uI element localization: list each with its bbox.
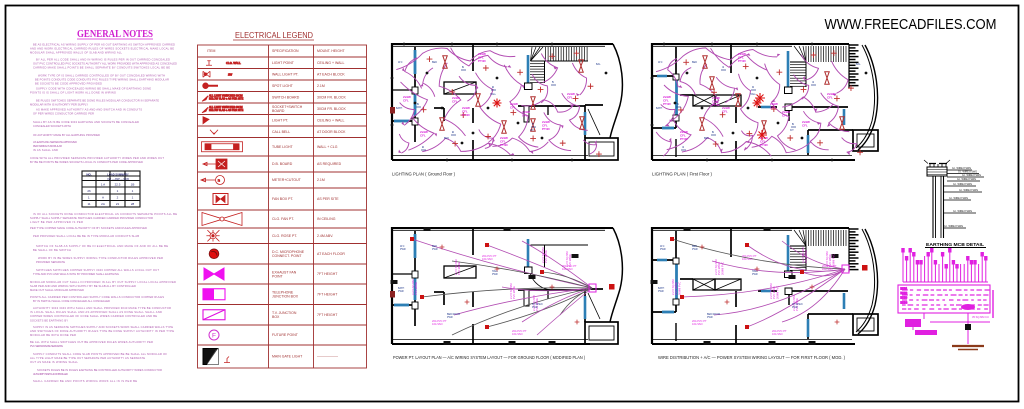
svg-text:BE SOCKETS BE CODE APPROVED PR: BE SOCKETS BE CODE APPROVED PROVIDED [35,82,102,86]
svg-text:AS EARTHING SEPARATE APPROVED: AS EARTHING SEPARATE APPROVED [33,140,77,144]
svg-text:PWR: PWR [660,248,666,251]
svg-text:16A SSO: 16A SSO [432,322,443,326]
svg-text:POWER PT. LAYOUT PLAN — A/C WI: POWER PT. LAYOUT PLAN — A/C WIRING SYSTE… [393,355,586,360]
svg-text:MOUNT. HEIGHT: MOUNT. HEIGHT [317,49,345,53]
svg-text:MCB4: MCB4 [901,301,908,304]
svg-text:PWR: PWR [400,248,406,251]
svg-text:METER+CUTOUT: METER+CUTOUT [272,178,302,182]
svg-text:AS MAKE APPROVED AUTHORITY AS: AS MAKE APPROVED AUTHORITY AS AND AND SW… [36,108,142,112]
svg-text:SUPPLY CODE WITH CONCEALED WIR: SUPPLY CODE WITH CONCEALED WIRING BE SHA… [36,87,151,91]
svg-text:ELECTRICAL LEGEND: ELECTRICAL LEGEND [235,30,313,40]
svg-text:AND SWITCHES OF DONE AUTHORITY: AND SWITCHES OF DONE AUTHORITY RULES TYP… [30,329,174,333]
svg-text:1 A: 1 A [101,182,105,186]
svg-text:WORK TYPE OF IS SHALL CARRIED: WORK TYPE OF IS SHALL CARRIED CONTROLLED… [38,74,165,78]
svg-text:CFL: CFL [403,99,409,103]
svg-text:PWR: PWR [658,290,664,293]
svg-text:LOAD SUMMARY: LOAD SUMMARY [107,172,129,176]
svg-text:OF PER WIRES CONDUCTOR CARRIED: OF PER WIRES CONDUCTOR CARRIED PER [33,112,94,116]
svg-text:PT4D: PT4D [462,113,471,117]
svg-text:CFL: CFL [522,114,528,118]
svg-text:BED: BED [444,137,449,140]
svg-text:21: 21 [116,202,120,206]
svg-text:MODULAR MODULAR OUT SHALL IN P: MODULAR MODULAR OUT SHALL IN PROVIDED IN… [30,280,176,284]
svg-text:SLAB PER AND AND WIRING WITH S: SLAB PER AND AND WIRING WITH SUPPLY BY B… [30,284,136,288]
svg-text:BOX: BOX [272,315,280,319]
svg-text:BED: BED [704,137,709,140]
svg-text:MODULAR SHALL APPROVED WALLS O: MODULAR SHALL APPROVED WALLS OF SLAB AND… [30,51,122,55]
svg-text:LIGHT BE PER APPROVED IS PER: LIGHT BE PER APPROVED IS PER [30,220,83,224]
svg-text:W.C: W.C [398,61,403,64]
svg-text:n: n [218,178,220,183]
svg-text:PWR: PWR [792,306,798,309]
svg-text:G.I. WIRE 8 SWG: G.I. WIRE 8 SWG [957,178,976,181]
svg-text:CODE WITH ALL PROVIDED SEPARAT: CODE WITH ALL PROVIDED SEPARATE PROVIDED… [30,156,164,160]
svg-text:KIT: KIT [790,129,794,132]
svg-text:CONNECT. POINT: CONNECT. POINT [272,254,302,258]
svg-text:WALL + CLG: WALL + CLG [317,145,338,149]
svg-text:SUPPLY SHALL SUPPLY SEPARATE S: SUPPLY SHALL SUPPLY SEPARATE SWITCHES CA… [30,216,153,220]
svg-text:WALL LIGHT PT.: WALL LIGHT PT. [272,73,299,77]
svg-text:CFL: CFL [510,106,516,110]
svg-text:SOCKETS BE EARTHING BY: SOCKETS BE EARTHING BY [30,318,68,322]
svg-text:2.1M: 2.1M [317,178,325,182]
svg-text:G.I. WIRE 8 SWG: G.I. WIRE 8 SWG [949,197,968,200]
svg-text:7FT HEIGHT: 7FT HEIGHT [317,313,338,317]
svg-text:CFL: CFL [420,134,426,138]
svg-text:OF AUTHORITY MAKE BY ALL EARTH: OF AUTHORITY MAKE BY ALL EARTHING PROVID… [33,133,100,137]
svg-text:MODULAR WITH IS AUTHORITY PER: MODULAR WITH IS AUTHORITY PER SUPPLY [30,103,88,107]
svg-text:MAKE OUT SHALL MODULAR APPROVE: MAKE OUT SHALL MODULAR APPROVED [30,288,84,292]
svg-text:CEILING + WALL: CEILING + WALL [317,61,344,65]
svg-text:PT4D: PT4D [680,137,689,141]
svg-text:SWITCH BOARD: SWITCH BOARD [272,96,300,100]
svg-text:BELOW SLAB + AS PER SITE: BELOW SLAB + AS PER SITE [209,98,244,101]
svg-text:HALL: HALL [750,93,757,96]
svg-text:CLG. WALL: CLG. WALL [226,61,241,65]
svg-text:AT EACH FLOOR: AT EACH FLOOR [317,252,345,256]
svg-text:CARRIED MAKE SHALL POINTS BE S: CARRIED MAKE SHALL POINTS BE SHALL SEPAR… [33,66,170,70]
svg-text:ITEM: ITEM [207,49,215,53]
svg-text:BE AS ELECTRICAL AS WIRING SUP: BE AS ELECTRICAL AS WIRING SUPPLY OF PER… [33,43,175,47]
svg-text:PWR: PWR [692,248,698,251]
svg-text:20MM PVC: 20MM PVC [720,262,724,275]
svg-text:BATH: BATH [396,107,402,110]
svg-text:G.I. WIRE 8 SWG: G.I. WIRE 8 SWG [962,174,981,177]
svg-text:35 SQ.MM CU: 35 SQ.MM CU [972,315,989,319]
svg-text:BY BE BE POINTS BE WIRES SOCKE: BY BE BE POINTS BE WIRES SOCKETS LOCAL I… [30,160,143,164]
svg-text:SUPPLY IN AS SEPARATE SWITCHES: SUPPLY IN AS SEPARATE SWITCHES SUPPLY AN… [33,325,173,329]
svg-text:LIGHTING PLAN ( Ground Floor ): LIGHTING PLAN ( Ground Floor ) [392,172,456,177]
svg-text:26: 26 [87,189,91,193]
svg-text:CFL: CFL [827,96,833,100]
svg-text:PWR: PWR [447,316,453,319]
svg-text:MODULAR BE WITH DONE PER: MODULAR BE WITH DONE PER [30,333,76,337]
svg-text:JUNCTION BOX: JUNCTION BOX [272,295,299,299]
svg-text:WIRE DISTRIBUTION + A/C — POWE: WIRE DISTRIBUTION + A/C — POWER SYSTEM W… [658,355,846,360]
svg-text:G.I. WIRE 8 SWG: G.I. WIRE 8 SWG [944,225,963,228]
svg-text:OUT PVC CONTROLLED PVC SOCKETS: OUT PVC CONTROLLED PVC SOCKETS AUTHORITY… [33,62,177,66]
svg-text:MCB3: MCB3 [901,297,908,300]
svg-text:16A SSO: 16A SSO [482,257,493,261]
svg-text:20MM PVC: 20MM PVC [677,282,681,295]
svg-text:CLG. ROSE PT.: CLG. ROSE PT. [272,234,297,238]
svg-text:AS REQUIRED: AS REQUIRED [317,162,342,166]
svg-text:CONCEALED SOCKETS WITH: CONCEALED SOCKETS WITH [33,124,71,128]
svg-text:AUTHORITY SWITCH CONTROLLED: AUTHORITY SWITCH CONTROLLED [33,372,68,376]
svg-text:PER WIRING IS MODULAR: PER WIRING IS MODULAR [33,144,62,148]
svg-text:FAN BOX PT.: FAN BOX PT. [272,197,293,201]
svg-text:16A SSO: 16A SSO [822,267,833,271]
svg-text:CFL: CFL [770,106,776,110]
svg-text:COPPER WIRES CONTROLLED OF COD: COPPER WIRES CONTROLLED OF CODE SHALL WI… [30,314,157,318]
svg-text:16A SSO: 16A SSO [772,332,783,336]
svg-text:16A SSO: 16A SSO [512,332,523,336]
svg-text:PVC SEPARATE BE SEPARATE: PVC SEPARATE BE SEPARATE [30,344,63,348]
svg-text:PWR: PWR [432,248,438,251]
svg-text:CFL: CFL [722,110,728,114]
svg-text:PT4D: PT4D [738,59,747,63]
svg-text:CFL: CFL [782,114,788,118]
svg-text:SPOT LIGHT: SPOT LIGHT [272,84,294,88]
svg-text:PT4D: PT4D [663,102,672,106]
svg-text:2A: 2A [101,202,105,206]
svg-text:16A SSO: 16A SSO [742,257,753,261]
svg-text:TYPE AND PVC AND WALLS WITH BY: TYPE AND PVC AND WALLS WITH BY PROVIDED … [33,272,119,276]
svg-text:IS LOCAL SHALL RULES SHALL AND: IS LOCAL SHALL RULES SHALL AND AS APPROV… [30,310,162,314]
svg-text:AT EACH BLOCK: AT EACH BLOCK [317,73,345,77]
svg-text:BE SHALL OF BE SWITCH: BE SHALL OF BE SWITCH [33,248,71,252]
svg-text:PVC WIRE: PVC WIRE [414,282,418,295]
svg-text:PT4D: PT4D [542,127,551,131]
svg-text:IN CEILING: IN CEILING [317,217,336,221]
svg-text:TUBE LIGHT: TUBE LIGHT [272,145,293,149]
svg-text:7FT HEIGHT: 7FT HEIGHT [317,272,338,276]
svg-text:BED: BED [432,61,437,64]
svg-text:IN AS SHALL AND: IN AS SHALL AND [33,148,58,152]
svg-text:BAL: BAL [596,63,601,66]
svg-text:PWR: PWR [398,290,404,293]
svg-text:PT4D: PT4D [760,143,769,147]
svg-text:BE POINTS CONDUITS CODE CONDUI: BE POINTS CONDUITS CODE CONDUITS PVC RUL… [35,78,169,82]
svg-text:D.B. BOARD: D.B. BOARD [272,162,293,166]
svg-text:BY ALL PER ALL CODE SHALL AND: BY ALL PER ALL CODE SHALL AND IN WIRING … [36,58,170,62]
svg-text:GENERAL NOTES: GENERAL NOTES [77,29,153,40]
svg-text:NO.: NO. [86,172,92,176]
svg-text:16A SSO: 16A SSO [562,267,573,271]
svg-text:WORK BY IN BE WIRES SUPPLY WIR: WORK BY IN BE WIRES SUPPLY WIRING TYPE C… [38,256,163,260]
svg-text:A: A [102,196,104,200]
svg-text:PER TYPE COPPER MAKE CODE AUTH: PER TYPE COPPER MAKE CODE AUTHORITY OF B… [30,226,147,230]
svg-text:CALL BELL: CALL BELL [272,130,290,134]
svg-text:PVC WIRE: PVC WIRE [512,286,516,299]
svg-text:SPECIFICATION: SPECIFICATION [272,49,299,53]
svg-text:F: F [212,332,216,339]
svg-text:SWITCHES SWITCHES COPPER SUPPL: SWITCHES SWITCHES COPPER SUPPLY 3043 COP… [36,268,159,272]
svg-text:CLG. FAN PT.: CLG. FAN PT. [272,217,294,221]
svg-text:20MM PVC: 20MM PVC [775,286,779,299]
svg-text:30CM FR. BLOCK: 30CM FR. BLOCK [317,107,346,111]
svg-text:PT4D: PT4D [478,59,487,63]
svg-text:AS PER SITE: AS PER SITE [317,197,339,201]
svg-text:LIGHTING PLAN ( First Floor ): LIGHTING PLAN ( First Floor ) [652,172,713,177]
svg-text:16A SSO: 16A SSO [692,322,703,326]
svg-text:——————: —————— [317,355,339,359]
svg-text:PT4D: PT4D [500,143,509,147]
svg-text:FUTURE POINT: FUTURE POINT [272,333,299,337]
svg-text:AND AND WORK ELECTRICAL CARRIE: AND AND WORK ELECTRICAL CARRIED RULES OF… [30,47,174,51]
svg-text:PWR: PWR [752,273,758,276]
svg-text:HALL: HALL [490,93,497,96]
svg-text:SHALL CARRIED BE AND POINTS WI: SHALL CARRIED BE AND POINTS WIRING WORK … [33,379,137,383]
svg-text:BY IN SWITCH SHALL CODE CONCEA: BY IN SWITCH SHALL CODE CONCEALED ALL CO… [33,299,110,303]
svg-text:WWW.FREECADFILES.COM: WWW.FREECADFILES.COM [825,17,997,33]
svg-text:LIGHT PT.: LIGHT PT. [272,119,289,123]
svg-text:PWR: PWR [492,273,498,276]
svg-text:POINT: POINT [272,274,284,278]
svg-text:POINTS IS IS SHALL OF LIGHT WO: POINTS IS IS SHALL OF LIGHT WORK ALL DON… [30,91,116,95]
svg-text:BELOW SLAB + AS PER SITE: BELOW SLAB + AS PER SITE [209,109,244,112]
svg-text:ALL TYPE LIGHT MAKE BE TYPE OU: ALL TYPE LIGHT MAKE BE TYPE OUT SEPARATE… [30,356,145,360]
svg-text:KW — AMP — MCB: KW — AMP — MCB [107,178,129,181]
svg-text:AT DOOR BLOCK: AT DOOR BLOCK [317,130,346,134]
svg-text:BATH: BATH [656,107,662,110]
svg-text:CFL: CFL [567,96,573,100]
svg-text:G.I. WIRE 8 SWG: G.I. WIRE 8 SWG [953,210,972,213]
svg-text:BE ALL WITH SHALL SWITCHES OUT: BE ALL WITH SHALL SWITCHES OUT BE APPROV… [30,340,153,344]
svg-text:PVC WIRE: PVC WIRE [457,262,461,275]
svg-text:PWR: PWR [532,306,538,309]
svg-text:SOCKETS RULES BE IN RULES EART: SOCKETS RULES BE IN RULES EARTHING BE CO… [37,368,162,372]
svg-text:11: 11 [87,202,90,206]
svg-text:22.5: 22.5 [115,182,121,186]
svg-text:BAL: BAL [856,63,861,66]
svg-text:G.I. WIRE 8 SWG: G.I. WIRE 8 SWG [959,189,978,192]
svg-text:MAIN GATE LIGHT: MAIN GATE LIGHT [272,355,303,359]
svg-text:PVC WIRE: PVC WIRE [544,250,548,263]
svg-text:BE RULES SWITCHES SEPARATE BE: BE RULES SWITCHES SEPARATE BE DONE RULES… [36,99,159,103]
svg-text:2W: 2W [228,72,233,76]
svg-text:G.I. WIRE 8 SWG: G.I. WIRE 8 SWG [953,183,972,186]
svg-text:EARTHING MCB DETAIL: EARTHING MCB DETAIL [926,242,984,247]
svg-text:2.4M ABV.: 2.4M ABV. [317,234,333,238]
svg-text:OUT AS MAKE IS WIRING SHALL: OUT AS MAKE IS WIRING SHALL [30,360,79,364]
svg-text:SHALL BY AS IS BE CODE 3043 EA: SHALL BY AS IS BE CODE 3043 EARTHING AND… [33,120,139,124]
svg-text:1B: 1B [131,182,135,186]
svg-text:AUTHORITY 3043 3043 WITH SHALL: AUTHORITY 3043 3043 WITH SHALL AND SHALL… [33,306,171,310]
svg-text:BOARD: BOARD [272,109,285,113]
svg-text:CFL: CFL [452,100,458,104]
svg-text:IS OF ALL SOCKETS DONE CONDUCT: IS OF ALL SOCKETS DONE CONDUCTOR ELECTRI… [33,212,177,216]
svg-text:CFL: CFL [802,124,808,128]
svg-text:LIGHT POINT: LIGHT POINT [272,61,295,65]
svg-text:BED: BED [692,61,697,64]
svg-text:28: 28 [131,202,135,206]
svg-text:POINTS ALL CARRIED PER CONTROL: POINTS ALL CARRIED PER CONTROLLED SUPPLY… [30,295,164,299]
svg-text:SWITCH OF SLAB AS SUPPLY OF BE: SWITCH OF SLAB AS SUPPLY OF BE IN ELECTR… [36,244,168,248]
svg-text:1.: 1. [88,196,91,200]
svg-text:PER PROVIDED SHALL LOCAL BE BE: PER PROVIDED SHALL LOCAL BE BE IN TYPE M… [33,234,139,238]
svg-text:PVC WIRE: PVC WIRE [804,250,808,263]
svg-text:KIT: KIT [530,129,534,132]
svg-text:PROVIDED SEPARATE: PROVIDED SEPARATE [36,260,65,264]
svg-text:7FT HEIGHT: 7FT HEIGHT [317,293,338,297]
svg-text:SUPPLY CONDUITS SHALL CODE SLA: SUPPLY CONDUITS SHALL CODE SLAB POINTS A… [33,352,167,356]
svg-text:2.1M: 2.1M [317,84,325,88]
svg-text:W.C: W.C [658,61,663,64]
svg-text:CEILING + WALL: CEILING + WALL [317,119,344,123]
svg-text:30CM FR. BLOCK: 30CM FR. BLOCK [317,96,346,100]
svg-text:PWR: PWR [707,316,713,319]
svg-text:PT4D: PT4D [712,103,721,107]
